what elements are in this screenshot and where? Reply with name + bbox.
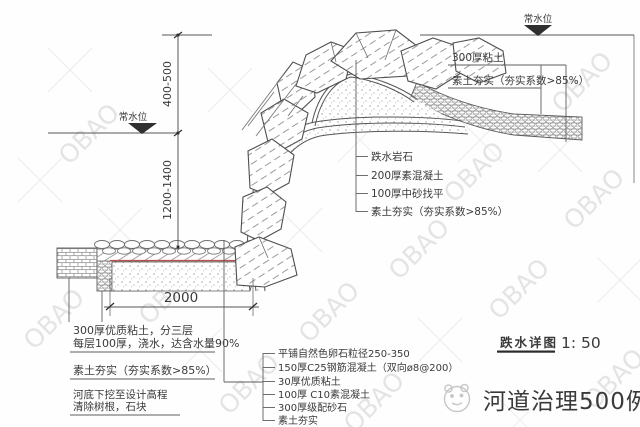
bottom-callout-5: 300厚级配砂石 — [278, 401, 347, 414]
left-note-3-line-1: 河底下挖至设计高程 — [73, 388, 168, 401]
water-level-right: 常水位 — [420, 13, 634, 36]
left-note-1-line-2: 每层100厚，浇水，达含水量90% — [73, 336, 239, 350]
mid-callout-1: 跌水岩石 — [371, 150, 413, 163]
left-note-1-line-1: 300厚优质粘土，分三层 — [73, 323, 193, 337]
bottom-callout-2: 150厚C25钢筋混凝土（双向ø8@200） — [278, 361, 458, 374]
soil-callout-label: 素土夯实（夯实系数>85%） — [452, 74, 589, 87]
obao-watermark: OBAO — [483, 253, 555, 325]
water-level-triangle-icon — [128, 123, 157, 134]
water-level-left-label: 常水位 — [119, 111, 148, 123]
title-underline — [497, 351, 555, 353]
brand-watermark-text: 河道治理500例 — [483, 389, 640, 415]
obao-watermark: OBAO — [293, 276, 365, 348]
left-note-3-line-2: 清除树根，石块 — [73, 400, 147, 413]
rock — [235, 237, 297, 287]
dim-width-label: 2000 — [164, 290, 198, 306]
mid-callout-4: 素土夯实（夯实系数>85%） — [371, 205, 508, 218]
bank-brick-block — [57, 248, 97, 278]
bottom-callout-6: 素土夯实 — [278, 414, 318, 427]
rock — [241, 187, 286, 241]
obao-watermark: OBAO — [53, 98, 125, 170]
bottom-callout-4: 100厚 C10素混凝土 — [278, 388, 370, 401]
water-level-triangle-icon — [524, 25, 552, 36]
clay-callout-label: 300厚粘土 — [452, 51, 504, 64]
drawing-canvas: OBAOOBAOOBAOOBAOOBAOOBAOOBAOOBAOOBAOOBAO… — [0, 0, 640, 427]
dim-upper-label: 400-500 — [161, 61, 174, 107]
brand-logo-icon — [445, 384, 470, 411]
bottom-callout-1: 平铺自然色卵石粒径250-350 — [278, 347, 410, 360]
dim-lower-label: 1200-1400 — [161, 160, 174, 220]
brand-watermark: 河道治理500例 — [445, 384, 640, 415]
water-level-right-label: 常水位 — [524, 13, 553, 25]
vertical-dimension: 400-500 1200-1400 — [161, 32, 212, 248]
left-note-2: 素土夯实（夯实系数>85%） — [73, 363, 217, 377]
title-block: 跌水详图 1: 50 — [497, 334, 601, 353]
mid-callout-2: 200厚素混凝土 — [371, 169, 444, 182]
bottom-callout-3: 30厚优质粘土 — [278, 375, 341, 388]
obao-watermark: OBAO — [558, 163, 630, 235]
obao-watermark: OBAO — [383, 213, 455, 285]
drawing-scale: 1: 50 — [561, 334, 601, 352]
drawing-title: 跌水详图 — [500, 335, 558, 350]
mid-callout-3: 100厚中砂找平 — [371, 187, 444, 200]
